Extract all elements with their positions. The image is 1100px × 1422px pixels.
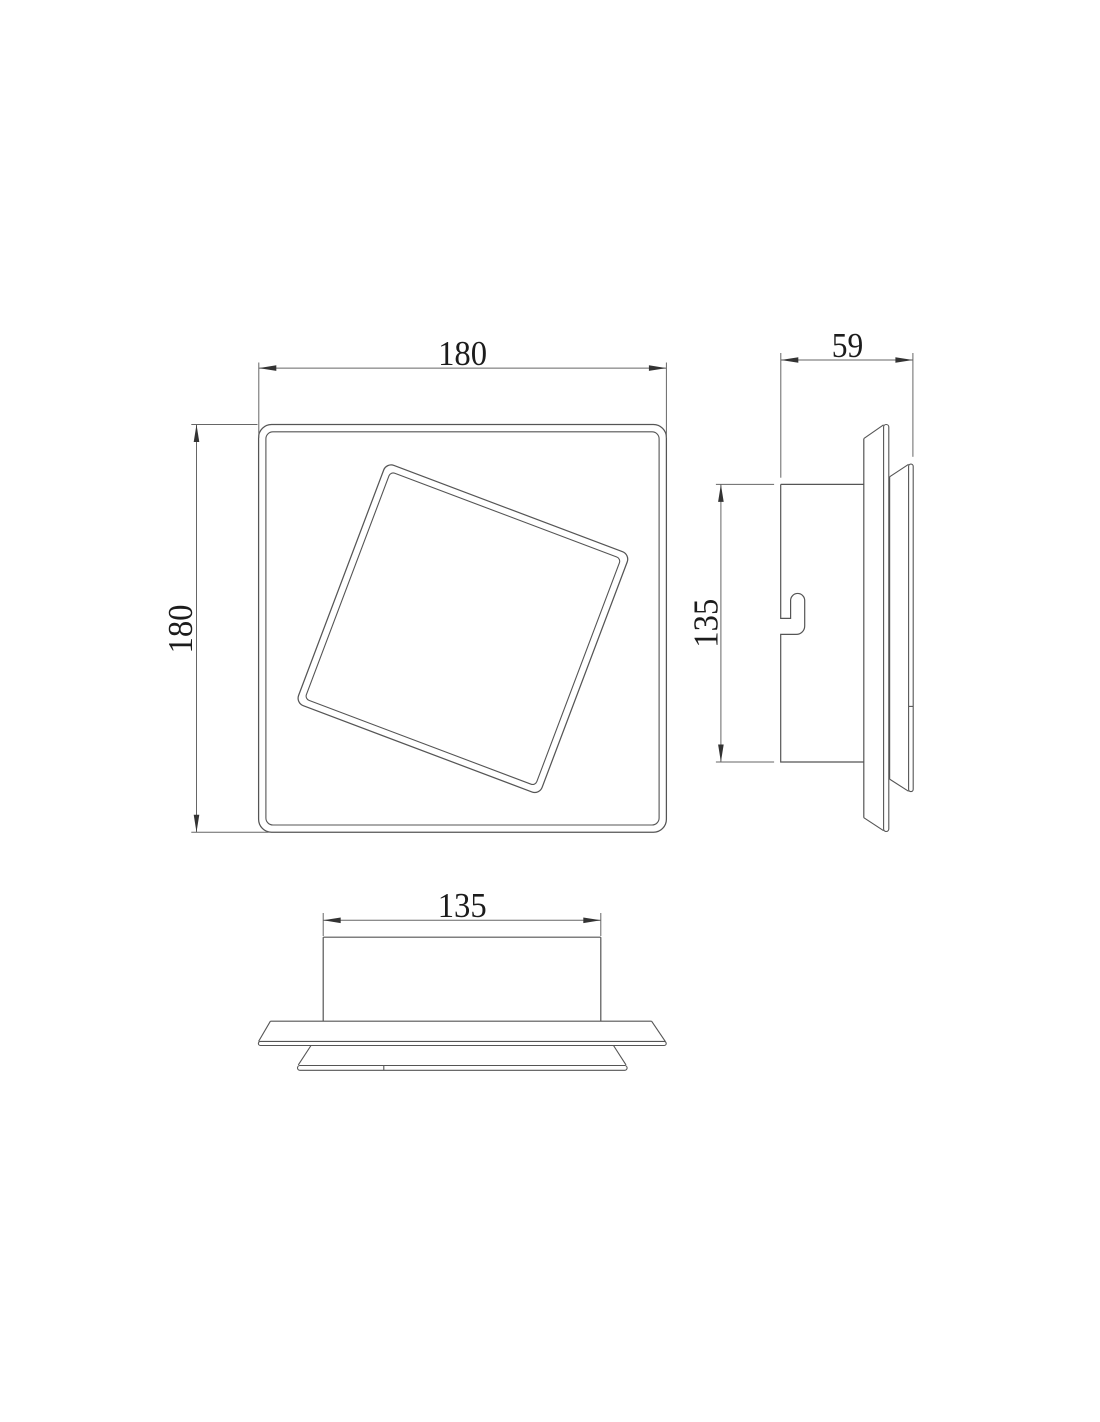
svg-text:180: 180 [161,605,200,654]
svg-text:135: 135 [686,599,725,648]
svg-text:59: 59 [832,326,864,365]
svg-text:135: 135 [438,886,487,925]
svg-text:180: 180 [438,334,487,373]
